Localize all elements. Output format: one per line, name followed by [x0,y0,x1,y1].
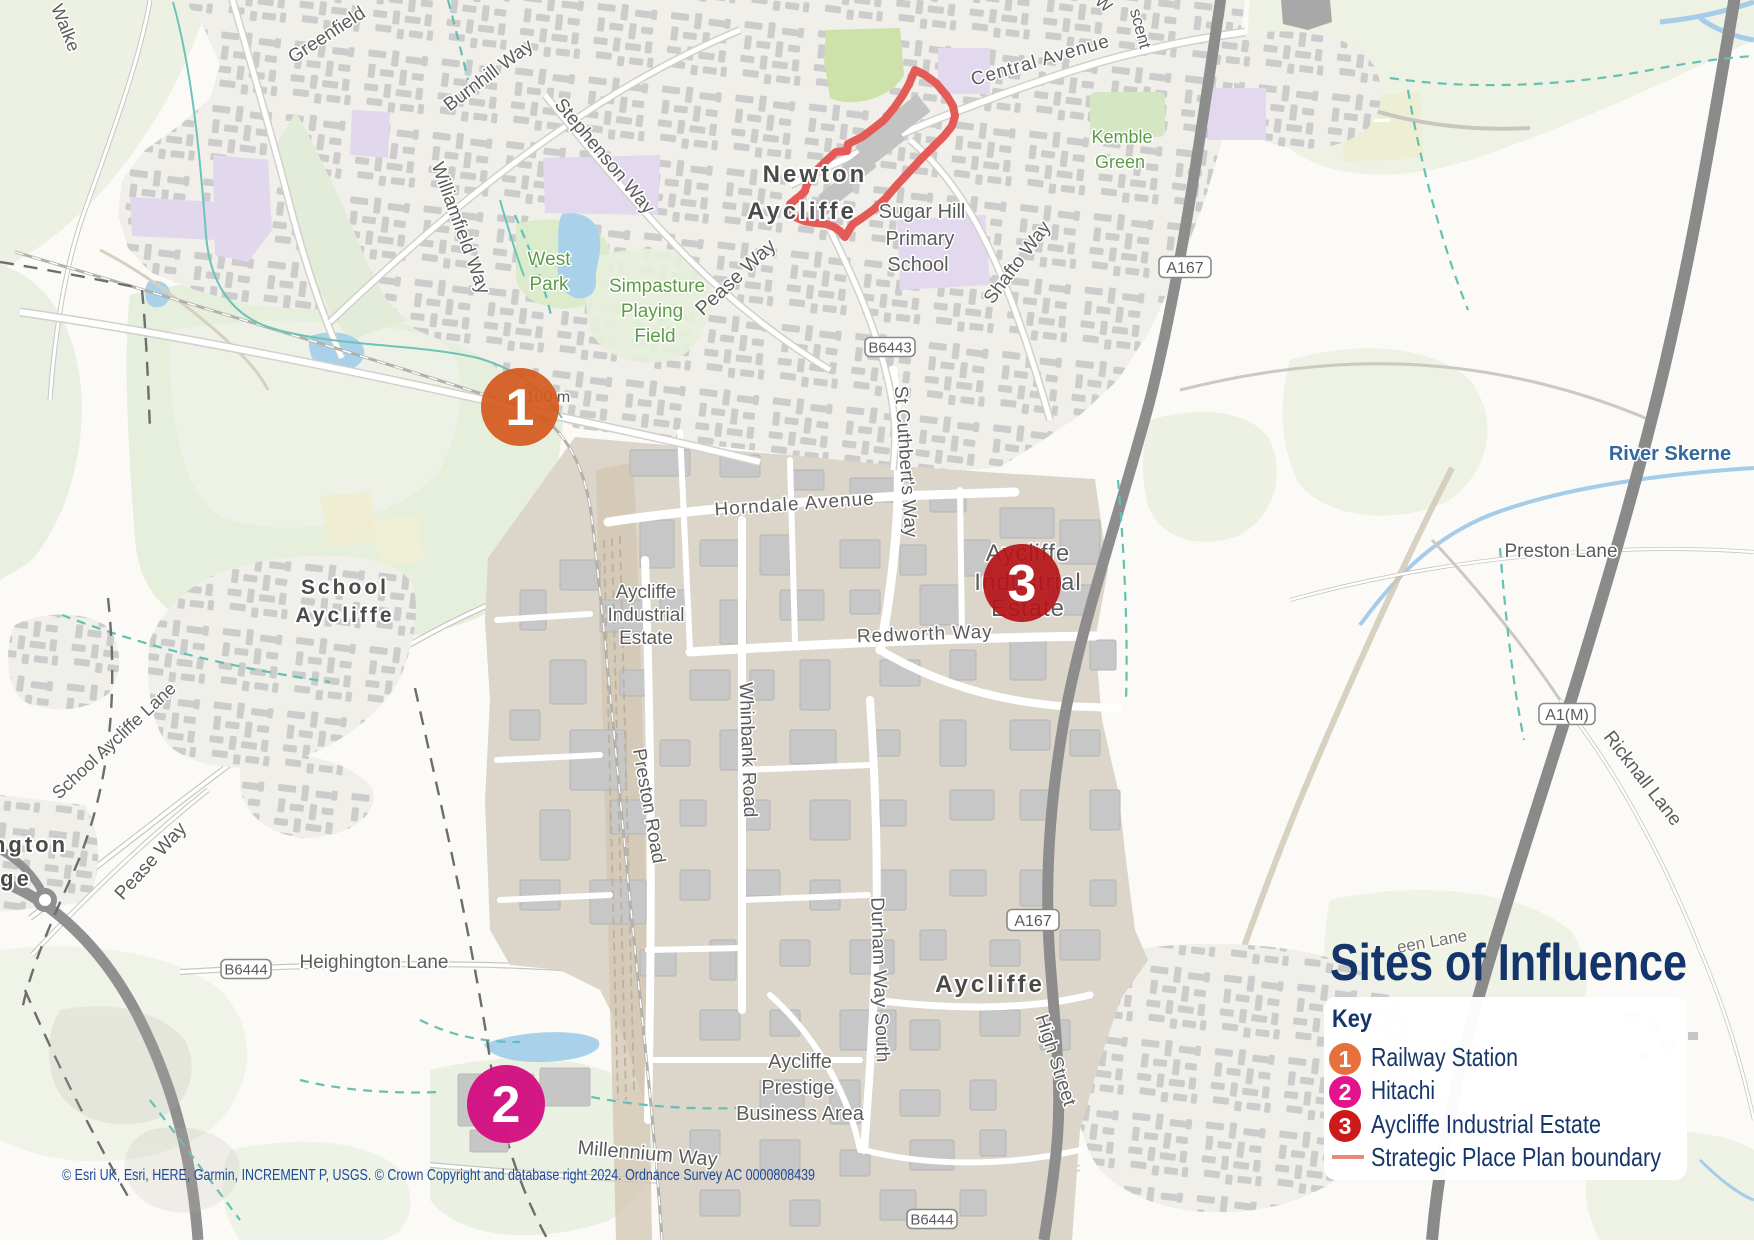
svg-text:B6443: B6443 [868,339,911,356]
svg-text:Playing: Playing [621,301,683,322]
svg-text:Industrial: Industrial [607,605,684,626]
svg-text:Aycliffe: Aycliffe [747,198,857,225]
svg-text:A167: A167 [1166,260,1203,277]
svg-text:Aycliffe: Aycliffe [768,1051,832,1073]
svg-text:3: 3 [1008,555,1037,613]
svg-text:River Skerne: River Skerne [1609,443,1731,465]
svg-text:Aycliffe: Aycliffe [935,971,1045,998]
svg-text:ge: ge [0,866,32,891]
svg-text:Newton: Newton [763,161,868,188]
svg-text:Railway Station: Railway Station [1371,1042,1518,1072]
svg-text:Aycliffe: Aycliffe [295,604,394,627]
svg-text:Aycliffe: Aycliffe [616,582,677,603]
svg-text:Kemble: Kemble [1091,127,1152,147]
svg-text:Field: Field [634,326,675,347]
svg-text:1: 1 [1339,1046,1352,1072]
svg-text:© Esri UK, Esri, HERE, Garmin,: © Esri UK, Esri, HERE, Garmin, INCREMENT… [62,1167,815,1184]
svg-text:1: 1 [506,379,535,437]
svg-text:Heighington Lane: Heighington Lane [300,952,449,973]
svg-text:A1(M): A1(M) [1545,707,1589,724]
svg-text:Sugar Hill: Sugar Hill [879,201,966,223]
svg-text:Hitachi: Hitachi [1371,1075,1435,1105]
svg-text:ngton: ngton [0,832,68,857]
svg-text:A167: A167 [1014,913,1051,930]
svg-text:Simpasture: Simpasture [609,276,705,297]
svg-text:West: West [528,249,572,270]
svg-text:School: School [301,576,389,599]
svg-text:Preston Lane: Preston Lane [1504,541,1617,562]
svg-text:Strategic Place Plan boundary: Strategic Place Plan boundary [1371,1142,1661,1172]
svg-text:B6444: B6444 [224,961,267,978]
svg-text:Estate: Estate [619,628,673,649]
svg-text:School: School [887,254,948,276]
svg-text:B6444: B6444 [910,1211,953,1228]
svg-text:Park: Park [529,274,569,295]
svg-text:Aycliffe Industrial Estate: Aycliffe Industrial Estate [1371,1109,1601,1139]
svg-text:Key: Key [1332,1005,1372,1033]
svg-text:Prestige: Prestige [761,1077,834,1099]
svg-text:2: 2 [492,1076,521,1134]
svg-text:Primary: Primary [886,228,955,250]
svg-text:2: 2 [1339,1079,1352,1105]
svg-text:Business Area: Business Area [736,1103,865,1125]
svg-text:Green: Green [1095,152,1145,172]
svg-text:3: 3 [1339,1113,1352,1139]
svg-text:Sites of Influence: Sites of Influence [1330,934,1687,992]
